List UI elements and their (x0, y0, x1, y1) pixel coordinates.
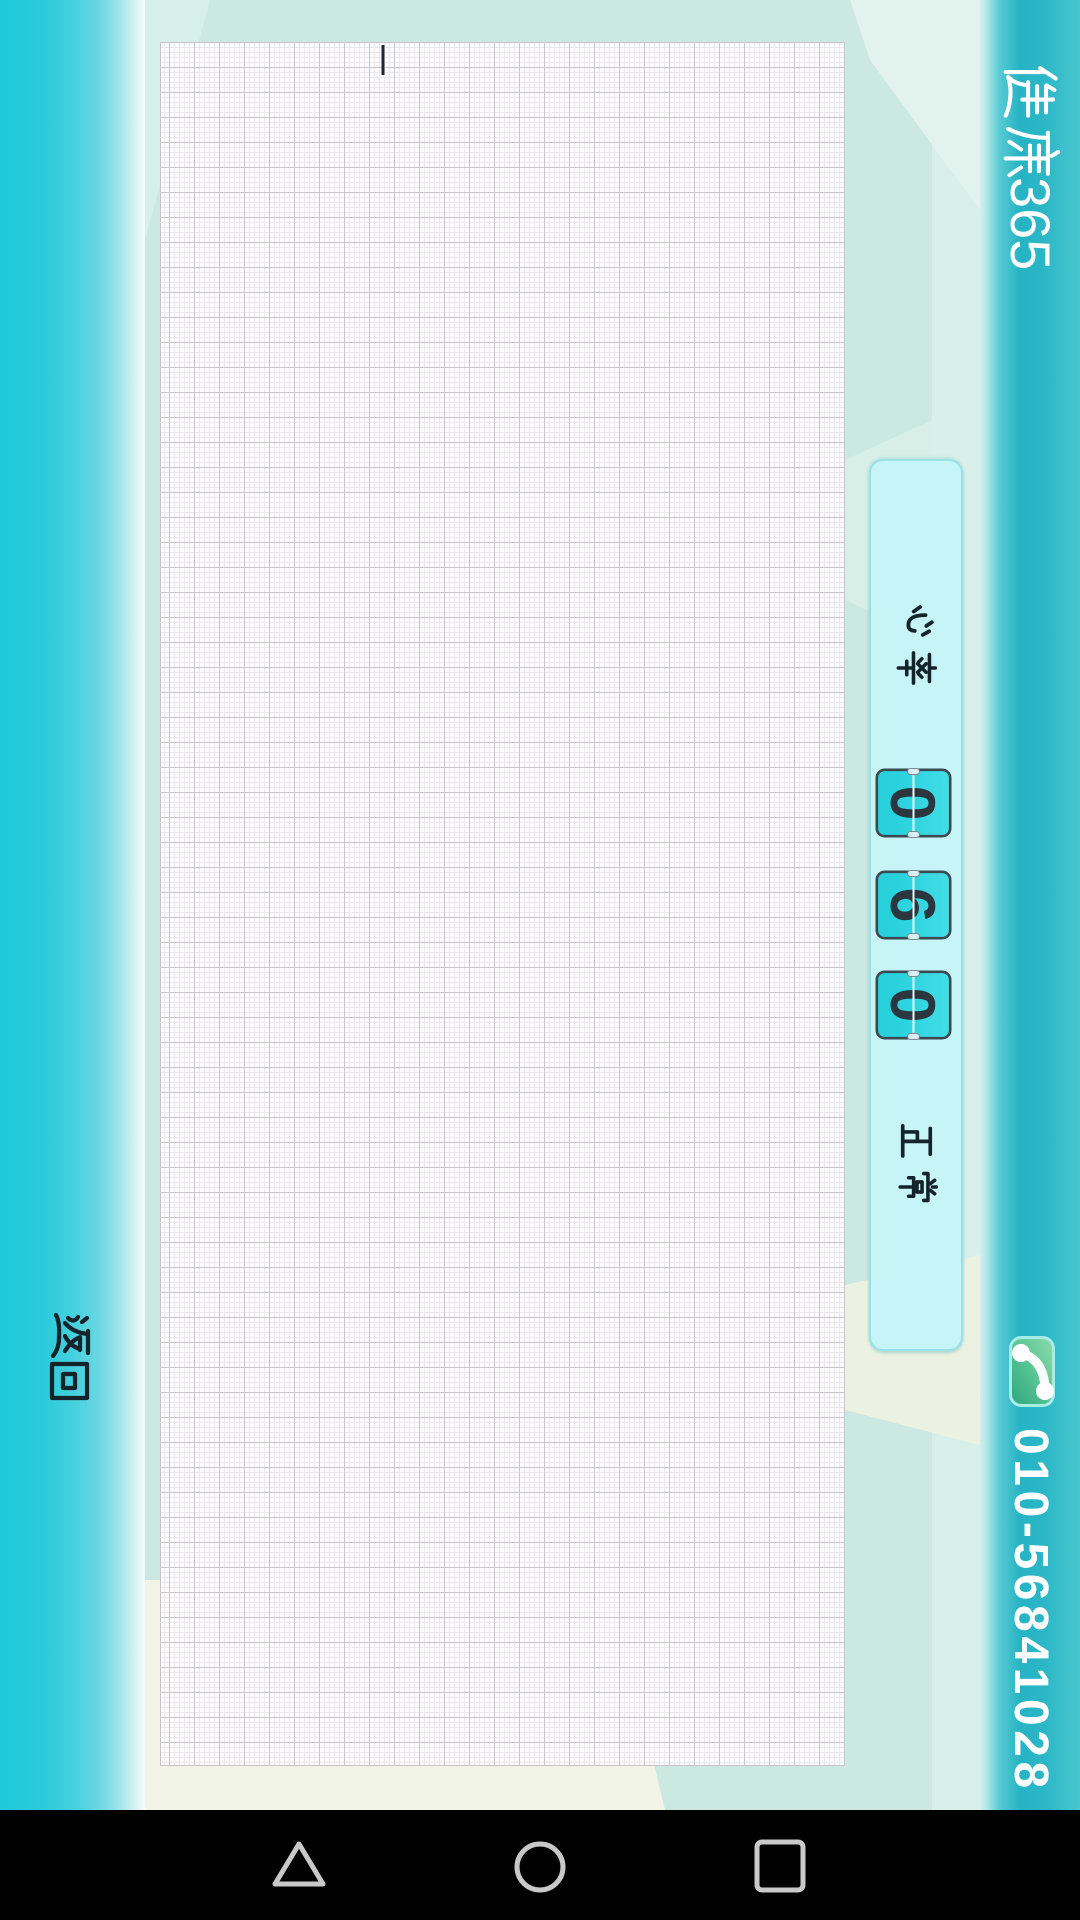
svg-text:0: 0 (877, 785, 947, 820)
svg-text:0: 0 (877, 987, 947, 1022)
svg-text:6: 6 (877, 887, 947, 922)
